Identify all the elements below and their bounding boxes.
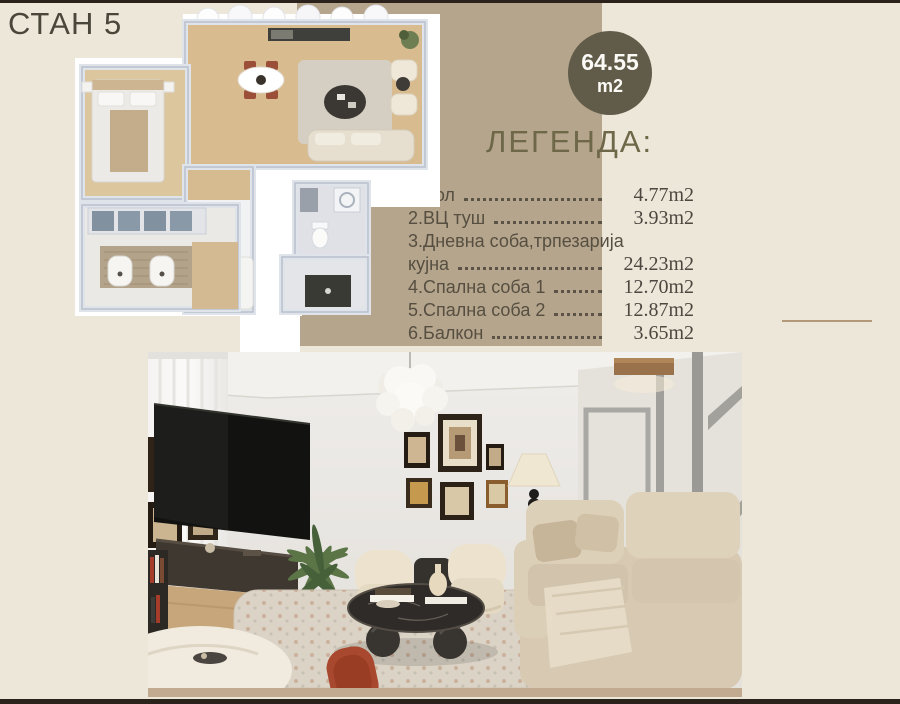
- legend-value: 12.70m2: [608, 276, 694, 298]
- legend-heading: ЛЕГЕНДА:: [486, 124, 653, 160]
- divider-line: [782, 320, 872, 322]
- living-room: [185, 22, 425, 167]
- floor-plan-image: [58, 2, 466, 354]
- sofa: [514, 492, 742, 689]
- area-badge: 64.55 m2: [568, 31, 652, 115]
- area-badge-value: 64.55: [581, 49, 639, 75]
- bottom-border-bar: [0, 699, 900, 704]
- bookshelf: [148, 550, 168, 642]
- photo-bottom-strip: [148, 688, 742, 697]
- bedroom-2: [82, 205, 238, 309]
- area-badge-unit: m2: [597, 76, 623, 97]
- dotted-leader: [554, 290, 602, 293]
- tv: [154, 404, 310, 540]
- legend-value: 24.23m2: [608, 253, 694, 275]
- brochure-page: СТАН 5 64.55 m2 ЛЕГЕНДА: 1.Хол 4.77m2 2.…: [0, 0, 900, 704]
- legend-value: 12.87m2: [608, 299, 694, 321]
- dotted-leader: [554, 313, 602, 316]
- shower-room: [282, 257, 368, 312]
- bathroom: [295, 183, 368, 257]
- bedroom-1: [82, 67, 188, 199]
- dotted-leader: [458, 267, 602, 270]
- interior-photo: [148, 352, 742, 697]
- legend-value: 3.65m2: [608, 322, 694, 344]
- dotted-leader: [492, 336, 602, 339]
- dotted-leader: [494, 221, 602, 224]
- legend-value: 4.77m2: [608, 184, 694, 206]
- dotted-leader: [464, 198, 602, 201]
- legend-value: 3.93m2: [608, 207, 694, 229]
